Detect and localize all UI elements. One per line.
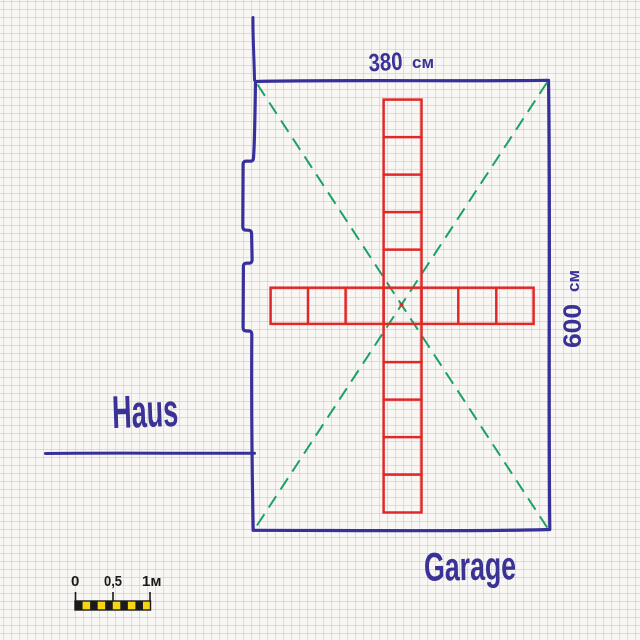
svg-text:Haus: Haus [111, 384, 179, 438]
svg-text:Garage: Garage [424, 544, 517, 590]
svg-text:см: см [564, 270, 583, 292]
svg-text:380: 380 [368, 48, 403, 78]
svg-text:0: 0 [71, 573, 79, 590]
svg-text:1м: 1м [142, 573, 161, 590]
svg-text:600: 600 [559, 304, 587, 348]
svg-text:0,5: 0,5 [104, 573, 122, 590]
svg-text:см: см [412, 53, 434, 72]
